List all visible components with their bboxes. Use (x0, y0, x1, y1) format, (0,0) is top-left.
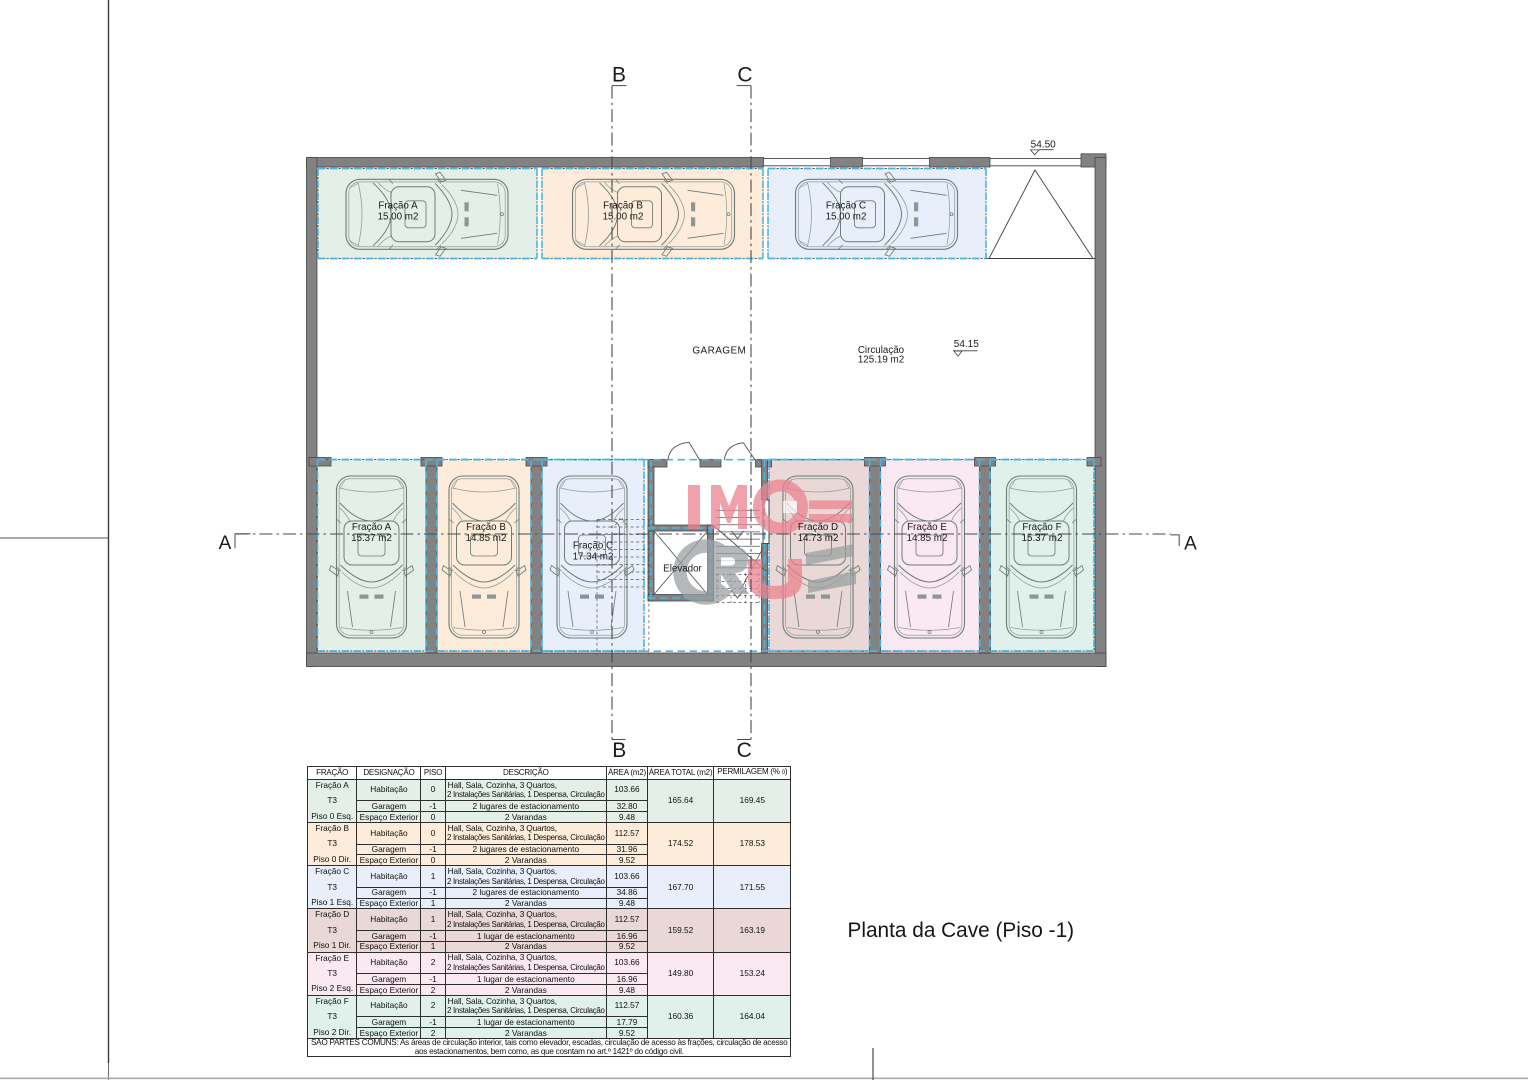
svg-text:15.00 m2: 15.00 m2 (378, 212, 419, 223)
svg-text:17.34 m2: 17.34 m2 (573, 552, 614, 563)
svg-text:B: B (612, 739, 626, 762)
svg-text:A: A (1184, 534, 1197, 555)
svg-text:B: B (612, 64, 626, 87)
svg-text:C: C (737, 64, 752, 87)
svg-text:15.00 m2: 15.00 m2 (603, 212, 644, 223)
svg-text:14.85 m2: 14.85 m2 (907, 533, 948, 544)
svg-text:C: C (737, 739, 752, 762)
svg-text:15.37 m2: 15.37 m2 (351, 533, 392, 544)
svg-text:Fração F: Fração F (1022, 522, 1061, 533)
svg-text:15.37 m2: 15.37 m2 (1022, 533, 1063, 544)
svg-text:54.15: 54.15 (954, 339, 979, 350)
svg-text:Fração A: Fração A (378, 201, 418, 212)
svg-text:Fração C: Fração C (573, 541, 613, 552)
svg-text:GARAGEM: GARAGEM (692, 346, 746, 357)
svg-text:Fração C: Fração C (826, 201, 866, 212)
svg-text:Fração B: Fração B (603, 201, 643, 212)
svg-text:Fração D: Fração D (798, 522, 838, 533)
svg-text:14.85 m2: 14.85 m2 (466, 533, 507, 544)
svg-text:Elevador: Elevador (663, 563, 702, 574)
svg-text:15.00 m2: 15.00 m2 (826, 212, 867, 223)
svg-text:54.50: 54.50 (1031, 139, 1056, 150)
svg-text:A: A (219, 533, 232, 554)
svg-text:Fração A: Fração A (352, 522, 392, 533)
svg-text:14.73 m2: 14.73 m2 (798, 533, 839, 544)
svg-text:125.19 m2: 125.19 m2 (858, 354, 904, 365)
svg-text:Fração E: Fração E (907, 522, 947, 533)
svg-text:Fração B: Fração B (466, 522, 506, 533)
